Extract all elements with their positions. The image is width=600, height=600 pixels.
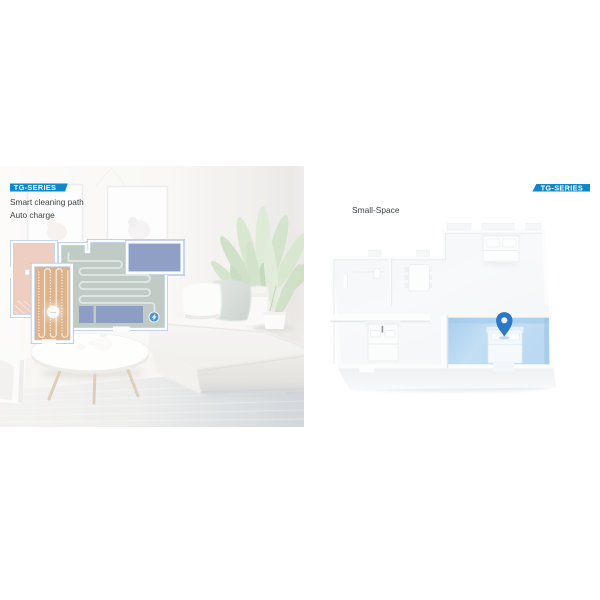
- svg-text:TG-SERIES: TG-SERIES: [541, 183, 583, 192]
- svg-text:TG-SERIES: TG-SERIES: [14, 183, 56, 192]
